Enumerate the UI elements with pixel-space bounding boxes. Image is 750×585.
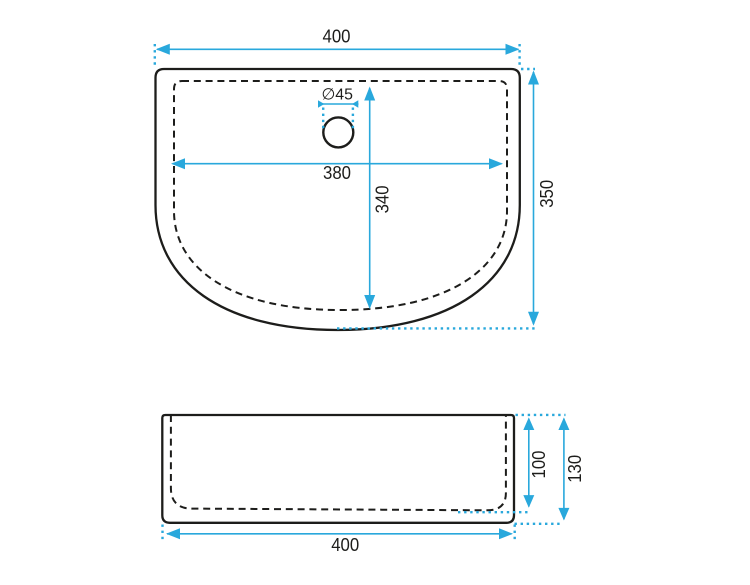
svg-text:400: 400 [331, 535, 359, 555]
svg-text:350: 350 [537, 180, 557, 208]
svg-text:130: 130 [565, 455, 585, 483]
svg-text:340: 340 [372, 185, 392, 213]
svg-text:380: 380 [323, 163, 351, 183]
svg-text:100: 100 [529, 451, 549, 479]
svg-text:∅45: ∅45 [321, 87, 353, 104]
svg-text:400: 400 [323, 26, 351, 46]
